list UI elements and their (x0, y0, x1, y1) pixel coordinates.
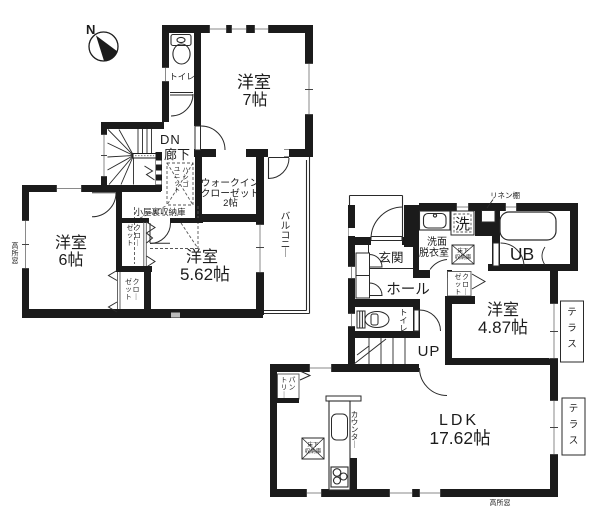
svg-text:17.62帖: 17.62帖 (429, 428, 490, 448)
svg-text:廊下: 廊下 (164, 147, 190, 162)
svg-text:クロ｜: クロ｜ (134, 224, 141, 247)
svg-text:ホール: ホール (386, 282, 430, 298)
svg-text:UP: UP (418, 343, 441, 360)
svg-text:床下: 床下 (307, 441, 319, 449)
svg-text:小屋裏収納庫: 小屋裏収納庫 (134, 207, 186, 217)
svg-text:7帖: 7帖 (243, 91, 268, 109)
svg-text:バルコニ｜: バルコニ｜ (281, 212, 291, 260)
svg-text:床下: 床下 (457, 247, 469, 255)
svg-text:洗: 洗 (455, 216, 470, 233)
svg-text:洗面: 洗面 (427, 236, 447, 248)
svg-text:クロ｜: クロ｜ (133, 278, 140, 301)
svg-text:トイレ: トイレ (169, 72, 195, 82)
svg-text:テラス: テラス (569, 404, 579, 447)
svg-text:高所窓: 高所窓 (490, 498, 511, 507)
svg-text:パン: パン (289, 376, 296, 392)
svg-text:クロ｜: クロ｜ (462, 273, 469, 296)
svg-text:ハシゴ: ハシゴ (182, 167, 189, 188)
svg-text:LDK: LDK (439, 412, 479, 429)
svg-text:玄関: 玄関 (378, 250, 403, 265)
svg-text:ゼット: ゼット (125, 277, 132, 301)
svg-text:洋室: 洋室 (55, 234, 87, 252)
svg-text:テラス: テラス (567, 307, 577, 350)
svg-text:カウンタ｜: カウンタ｜ (351, 410, 359, 449)
svg-text:収納庫: 収納庫 (305, 447, 322, 455)
svg-text:6帖: 6帖 (59, 251, 84, 269)
svg-text:ゼット: ゼット (127, 223, 134, 247)
svg-text:ユニット: ユニット (174, 166, 181, 194)
svg-text:脱衣室: 脱衣室 (419, 246, 449, 259)
svg-text:5.62帖: 5.62帖 (180, 265, 230, 284)
svg-text:トイレ: トイレ (400, 308, 408, 333)
svg-text:洋室: 洋室 (237, 73, 271, 92)
svg-text:収納庫: 収納庫 (455, 253, 472, 261)
svg-text:ゼット: ゼット (455, 272, 462, 296)
svg-text:UB: UB (510, 244, 534, 264)
svg-text:DN: DN (160, 132, 181, 147)
svg-text:4.87帖: 4.87帖 (478, 318, 528, 337)
svg-text:2帖: 2帖 (223, 197, 238, 209)
svg-text:高所窓: 高所窓 (12, 241, 19, 265)
svg-text:トリ｜: トリ｜ (281, 377, 288, 399)
svg-text:ウォークイン: ウォークイン (201, 177, 260, 189)
svg-text:洋室: 洋室 (186, 248, 218, 266)
svg-text:洋室: 洋室 (487, 301, 519, 319)
svg-text:リネン棚: リネン棚 (490, 190, 520, 200)
